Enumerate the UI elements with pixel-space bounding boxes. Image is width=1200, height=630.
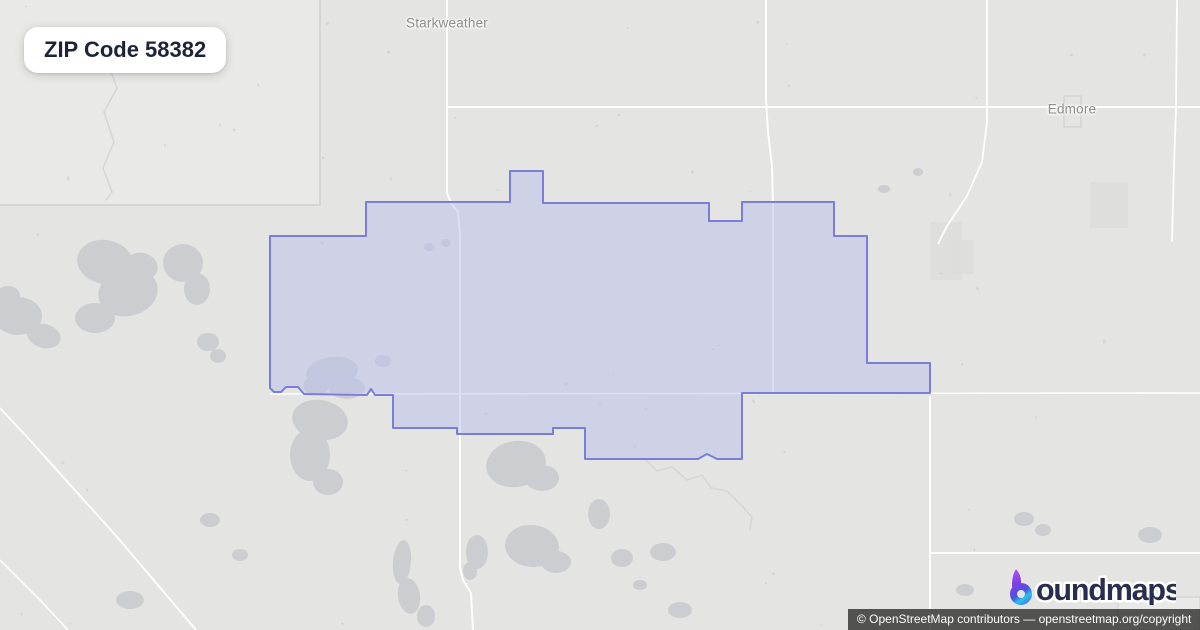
landcover-patch (952, 240, 974, 274)
landcover-patch (1090, 182, 1128, 228)
place-label-edmore: Edmore (1048, 102, 1096, 117)
zip-title-badge: ZIP Code 58382 (24, 27, 226, 73)
vegetation-speckle (164, 144, 165, 148)
lake (541, 551, 571, 573)
place-label-starkweather: Starkweather (406, 16, 488, 31)
lake (75, 303, 115, 333)
lake (210, 349, 226, 363)
lake (913, 168, 923, 176)
vegetation-speckle (322, 157, 325, 159)
lake (1138, 527, 1162, 543)
map-canvas[interactable]: ZIP Code 58382 oundmaps © OpenStreetMap … (0, 0, 1200, 630)
vegetation-speckle (772, 572, 775, 575)
lake (197, 333, 219, 351)
lake (956, 584, 974, 596)
vegetation-speckle (1143, 53, 1146, 57)
lake (417, 605, 435, 627)
lake (611, 549, 633, 567)
lake (633, 580, 647, 590)
osm-copyright-link[interactable]: © OpenStreetMap contributors — openstree… (857, 612, 1191, 626)
logo-ring-shape (1014, 587, 1029, 602)
lake (878, 185, 890, 193)
vegetation-speckle (1103, 340, 1106, 344)
lake (525, 465, 559, 491)
lake (184, 273, 210, 305)
lake (463, 562, 477, 580)
lake (650, 543, 676, 561)
zip-title-text: ZIP Code 58382 (44, 37, 206, 63)
lake (232, 549, 248, 561)
boundmaps-logo: oundmaps (1008, 568, 1176, 605)
lake (1035, 524, 1051, 536)
lake (200, 513, 220, 527)
boundmaps-logo-mark-icon (1012, 569, 1029, 602)
lake (313, 469, 343, 495)
basemap-svg[interactable] (0, 0, 1200, 630)
lake (1014, 512, 1034, 526)
vegetation-speckle (756, 21, 759, 24)
attribution-bar: © OpenStreetMap contributors — openstree… (848, 609, 1200, 630)
lake (116, 591, 144, 609)
boundmaps-logo-text: oundmaps (1036, 573, 1176, 605)
lake (668, 602, 692, 618)
vegetation-speckle (973, 548, 975, 551)
lake (588, 499, 610, 529)
